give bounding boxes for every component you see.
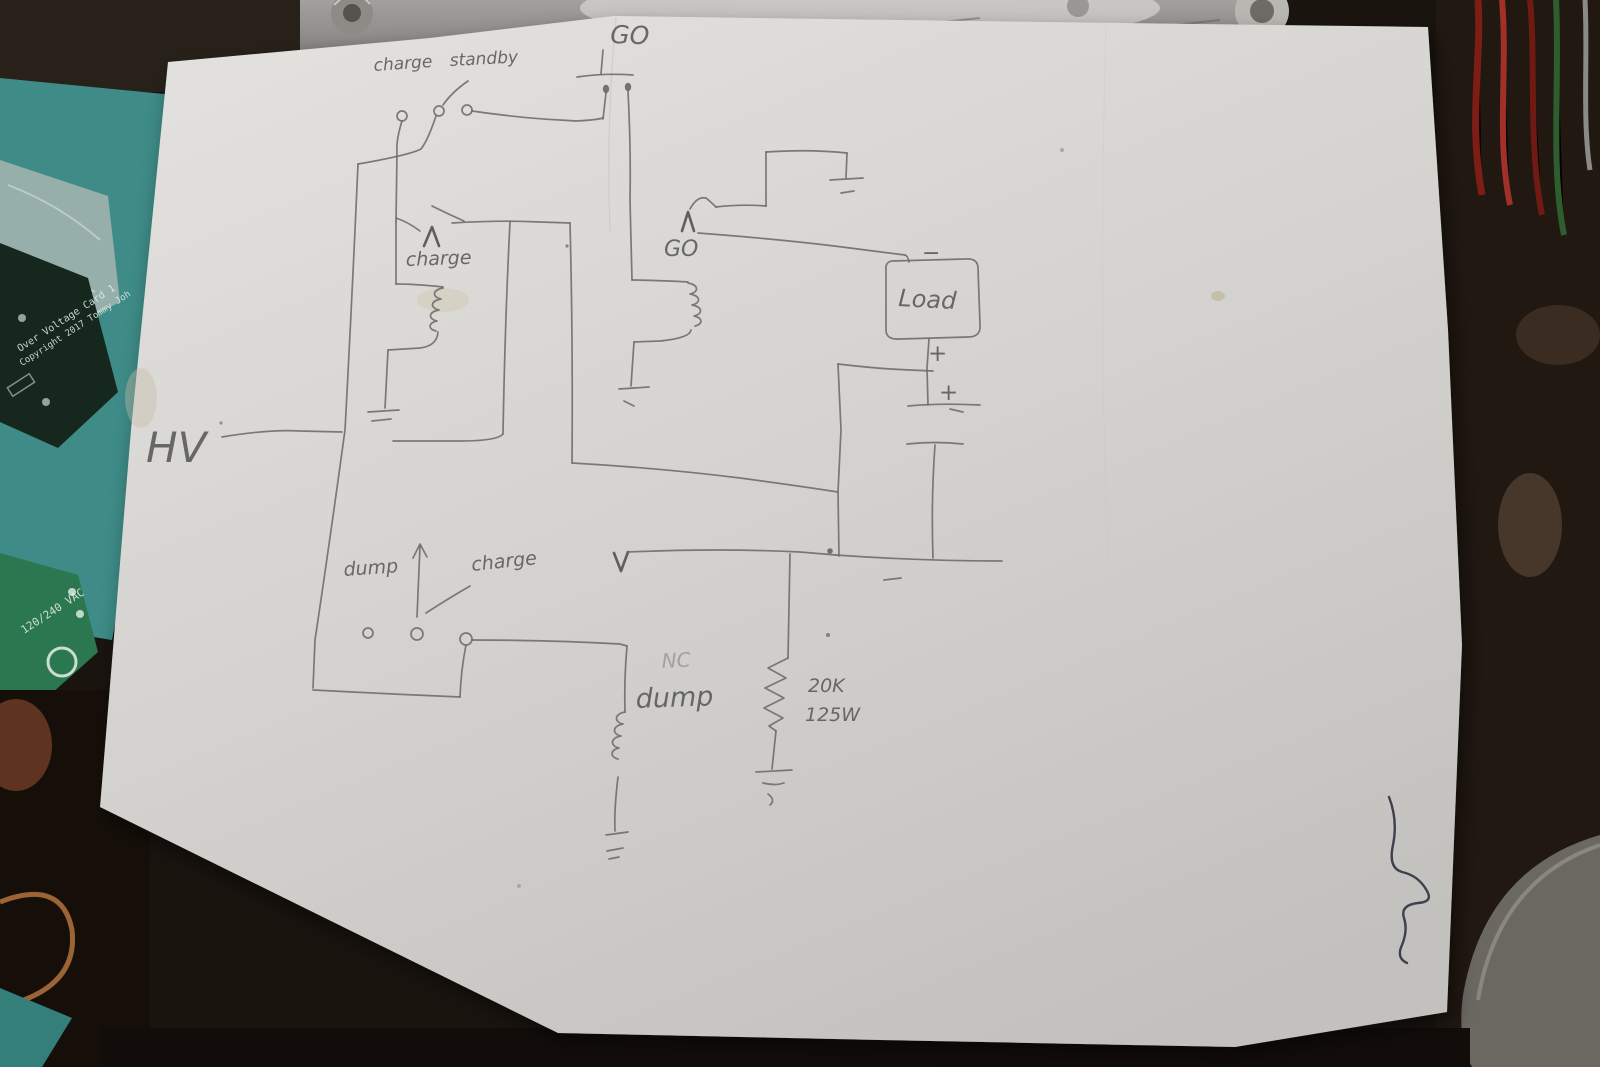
photo-of-schematic: Over Voltage Card 1 Copyright 2017 Tommy… bbox=[0, 0, 1600, 1067]
paper-sheet bbox=[100, 16, 1462, 1047]
cap-plus-upper: + bbox=[928, 341, 947, 367]
go-relay-label: GO bbox=[664, 237, 698, 262]
charge-relay-label: charge bbox=[405, 247, 471, 271]
stain-spot bbox=[1211, 291, 1225, 301]
go-button-contact-dot bbox=[603, 85, 609, 93]
stain-smudge bbox=[417, 288, 469, 312]
standoff-center bbox=[1250, 0, 1274, 23]
go-ground-lead-top bbox=[846, 153, 847, 178]
go-button-contact-dot bbox=[625, 83, 631, 91]
load-minus-sign: − bbox=[922, 241, 940, 266]
resistor-power-label: 125W bbox=[805, 704, 861, 726]
load-label: Load bbox=[898, 284, 958, 315]
top-switch-charge-label: charge bbox=[373, 52, 433, 76]
top-switch-standby-label: standby bbox=[449, 47, 519, 71]
paper bbox=[100, 16, 1462, 1047]
resistor-value-label: 20K bbox=[808, 675, 846, 697]
stain-edge bbox=[125, 368, 157, 428]
hv-label: HV bbox=[146, 423, 210, 472]
dump-relay-nc-label: NC bbox=[661, 648, 691, 673]
junction-dot bbox=[827, 548, 833, 554]
dump-relay-label: dump bbox=[635, 681, 714, 715]
bench-clutter2 bbox=[1498, 473, 1562, 577]
bench-clutter bbox=[1516, 305, 1600, 365]
cap-plus-lower: + bbox=[939, 380, 958, 406]
go-button-label: GO bbox=[610, 20, 650, 50]
dump-switch-dump-label: dump bbox=[343, 555, 399, 581]
